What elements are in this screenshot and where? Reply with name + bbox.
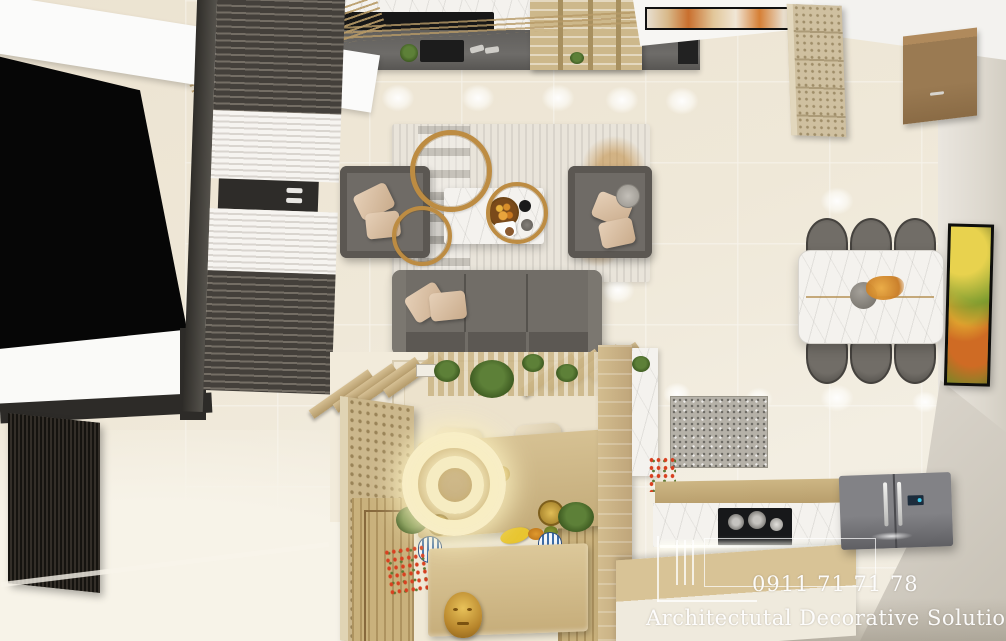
watermark-phone: 0911 71 71 78 [752,572,888,596]
granite-floor-mat [670,396,768,468]
watermark-line-vertical [692,540,694,585]
counter-tray [420,40,464,62]
sheer-curtain-lower [208,208,338,274]
wall-artwork-canvas [947,227,991,384]
shelf-plant [570,52,584,64]
shelf-books [416,364,436,377]
mask-eye [453,608,458,611]
light-glow [814,379,860,417]
shelf-divider [588,0,593,70]
fridge-display-light [918,498,922,502]
fridge-handle [897,482,903,526]
cooking-pot [748,511,766,529]
green-shrub [558,502,594,532]
zen-plant [434,360,460,382]
light-glow [455,79,501,117]
light-glow [535,79,581,117]
sofa-armrest-right [588,270,602,356]
light-glow [375,79,421,117]
zen-plant [556,364,578,382]
sofa-armrest-left [392,270,406,356]
interior-render: 0911 71 71 78 Architectutal Decorative S… [0,0,1006,641]
watermark-line-vertical [657,536,659,602]
zen-plant-fern [470,360,514,398]
watermark-line-vertical [676,540,678,585]
counter-wood-top [655,478,855,505]
fridge-glow [871,531,913,540]
wood-shelf-unit [530,0,642,70]
mask-eye [467,608,472,611]
light-glow [599,81,645,119]
artwork-top-canvas [647,9,795,28]
wall-cabinet [903,27,977,124]
shelf-divider [616,0,621,70]
sofa-seat-seam [526,274,528,332]
radiator-grille [8,413,100,593]
sofa-pillow [429,290,468,322]
cooking-pot [728,514,744,530]
gold-ring-large [410,130,492,212]
sheer-curtain-upper [211,110,341,182]
pillar-plant [632,356,650,372]
light-glow [814,182,860,220]
mask-mouth [457,622,469,625]
watermark-line-vertical [684,540,686,585]
gold-ring-small [392,206,452,266]
curtain-drape-lower [203,270,335,394]
golden-mask [444,592,482,638]
watermark-brand: Architectutal Decorative Solutions [646,606,1006,630]
side-table-round [616,184,640,208]
ring-light-inner [426,456,484,514]
bracket-handle [286,188,302,194]
fridge-handle [883,482,889,526]
curtain-bracket [218,178,319,211]
carved-wood-panel [787,4,847,137]
artwork-top [645,7,797,30]
light-glow [659,82,705,120]
curtain-drape-upper [213,0,345,115]
counter-dark-box [678,38,698,64]
counter-plant [400,44,418,62]
wall-artwork [944,223,994,386]
kettle [770,518,783,531]
fridge-display [907,495,923,506]
shelf-divider [558,0,563,70]
zen-plant [522,354,544,372]
bracket-handle [286,198,302,204]
watermark-line-horizontal [657,600,757,602]
curtain-assembly [183,0,346,416]
gold-ring-medium [486,182,548,244]
red-flower-shrub [383,543,431,596]
